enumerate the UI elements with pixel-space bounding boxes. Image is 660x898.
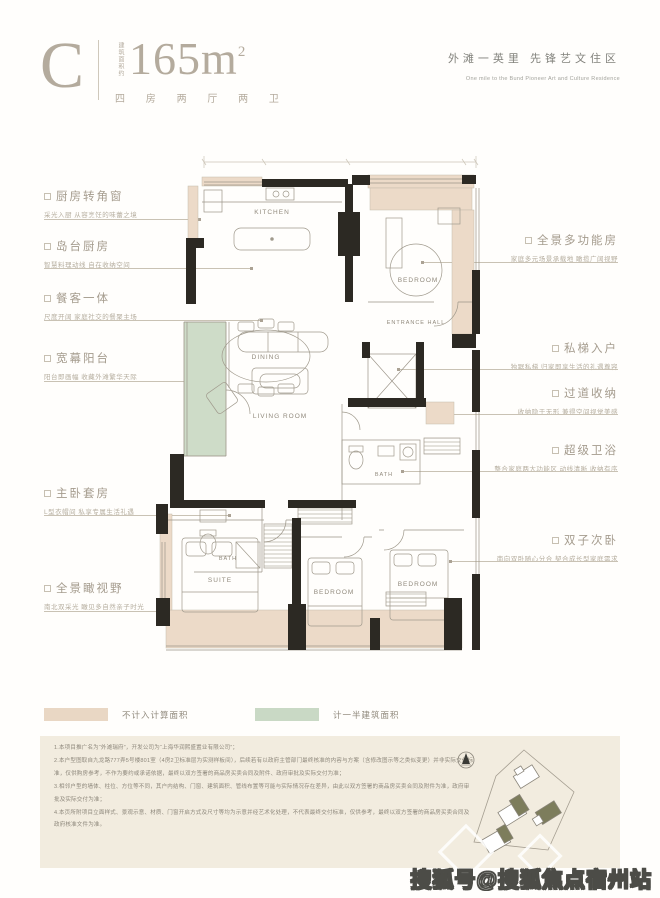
bullet-square-icon [552, 537, 559, 544]
legend-swatch-green [255, 708, 319, 721]
north-arrow-icon [458, 752, 474, 768]
bullet-square-icon [44, 490, 51, 497]
area-exponent: 2 [238, 44, 247, 60]
slogan: 外滩一英里 先锋艺文住区 One mile to the Bund Pionee… [448, 50, 620, 84]
site-boundary [474, 750, 574, 850]
room-label-bedroom-mid: BEDROOM [314, 589, 355, 596]
annotation-title: 厨房转角窗 [56, 191, 124, 203]
annotation-title: 过道收纳 [564, 388, 618, 400]
annotation-title: 全景多功能房 [537, 235, 618, 247]
bullet-square-icon [525, 237, 532, 244]
bullet-square-icon [44, 355, 51, 362]
room-label-suite: SUITE [208, 577, 232, 584]
room-label-entrance-hall: ENTRANCE HALL [387, 320, 446, 326]
bullet-square-icon [552, 345, 559, 352]
disclaimer-line-1: 1.本项目推广名为“外滩瑞府”，开发公司为“上海华润熙盛置业有限公司”； [54, 742, 474, 754]
disclaimer-line-4: 4.本页所附项目立面样式、景观示意、材质、门窗开启方式及尺寸等均为示意并经艺术化… [54, 807, 474, 832]
annotation-title: 主卧套房 [56, 488, 110, 500]
annotation-title: 餐客一体 [56, 293, 110, 305]
area-value: 165m2 [129, 36, 246, 82]
room-label-bath-right: BATH [375, 472, 393, 478]
slogan-cn: 外滩一英里 先锋艺文住区 [448, 50, 620, 66]
header-divider [98, 40, 99, 100]
annotation-title: 全景瞰视野 [56, 583, 124, 595]
floorplan-drawing: KITCHEN DINING BEDROOM ENTRANCE HALL LIV… [146, 152, 496, 672]
legend-label: 不计入计算面积 [122, 709, 189, 721]
annotation-title: 超级卫浴 [564, 445, 618, 457]
bullet-square-icon [552, 447, 559, 454]
annotation-title: 双子次卧 [564, 535, 618, 547]
bullet-square-icon [44, 193, 51, 200]
room-label-bedroom-top: BEDROOM [398, 277, 439, 284]
area-block: 建筑面积约 165m2 四 房 两 厅 两 卫 [111, 36, 288, 105]
unit-type-letter: C [40, 36, 84, 97]
watermark-text: 搜狐号@搜狐焦点宿州站 [411, 864, 652, 894]
balcony-half-area [184, 322, 226, 456]
bullet-square-icon [44, 243, 51, 250]
bullet-square-icon [552, 390, 559, 397]
room-label-bedroom-right: BEDROOM [398, 581, 439, 588]
disclaimer-line-3: 3.相邻户型的墙体、柱位、方位等不同，其户内结构、门窗、建筑面积、管线布置等可能… [54, 781, 474, 806]
annotation-title: 岛台厨房 [56, 241, 110, 253]
disclaimer-text: 1.本项目推广名为“外滩瑞府”，开发公司为“上海华润熙盛置业有限公司”； 2.本… [54, 742, 474, 833]
site-buildings [481, 761, 561, 854]
room-label-living-room: LIVING ROOM [253, 413, 307, 420]
legend-half-counted: 计一半建筑面积 [255, 708, 400, 721]
dimension-line [202, 156, 478, 168]
header: C 建筑面积约 165m2 四 房 两 厅 两 卫 [40, 36, 288, 105]
bullet-square-icon [44, 295, 51, 302]
bullet-square-icon [44, 585, 51, 592]
disclaimer-line-2: 2.本户型图取自九龙路777弄5号楼801室（4房2卫标准层为实测样板间），后续… [54, 755, 474, 780]
legend-swatch-beige [44, 708, 108, 721]
room-label-bath-left: BATH [219, 556, 237, 562]
legend-label: 计一半建筑面积 [333, 709, 400, 721]
floorplan-poster: C 建筑面积约 165m2 四 房 两 厅 两 卫 外滩一英里 先锋艺文住区 O… [0, 0, 660, 898]
room-label-kitchen: KITCHEN [254, 209, 290, 216]
annotation-title: 私梯入户 [564, 343, 618, 355]
area-prefix: 建筑面积约 [111, 42, 125, 77]
annotation-title: 宽幕阳台 [56, 353, 110, 365]
layout-label: 四 房 两 厅 两 卫 [111, 90, 288, 105]
legend-not-counted: 不计入计算面积 [44, 708, 189, 721]
room-label-dining: DINING [252, 354, 281, 361]
slogan-en: One mile to the Bund Pioneer Art and Cul… [448, 75, 620, 84]
